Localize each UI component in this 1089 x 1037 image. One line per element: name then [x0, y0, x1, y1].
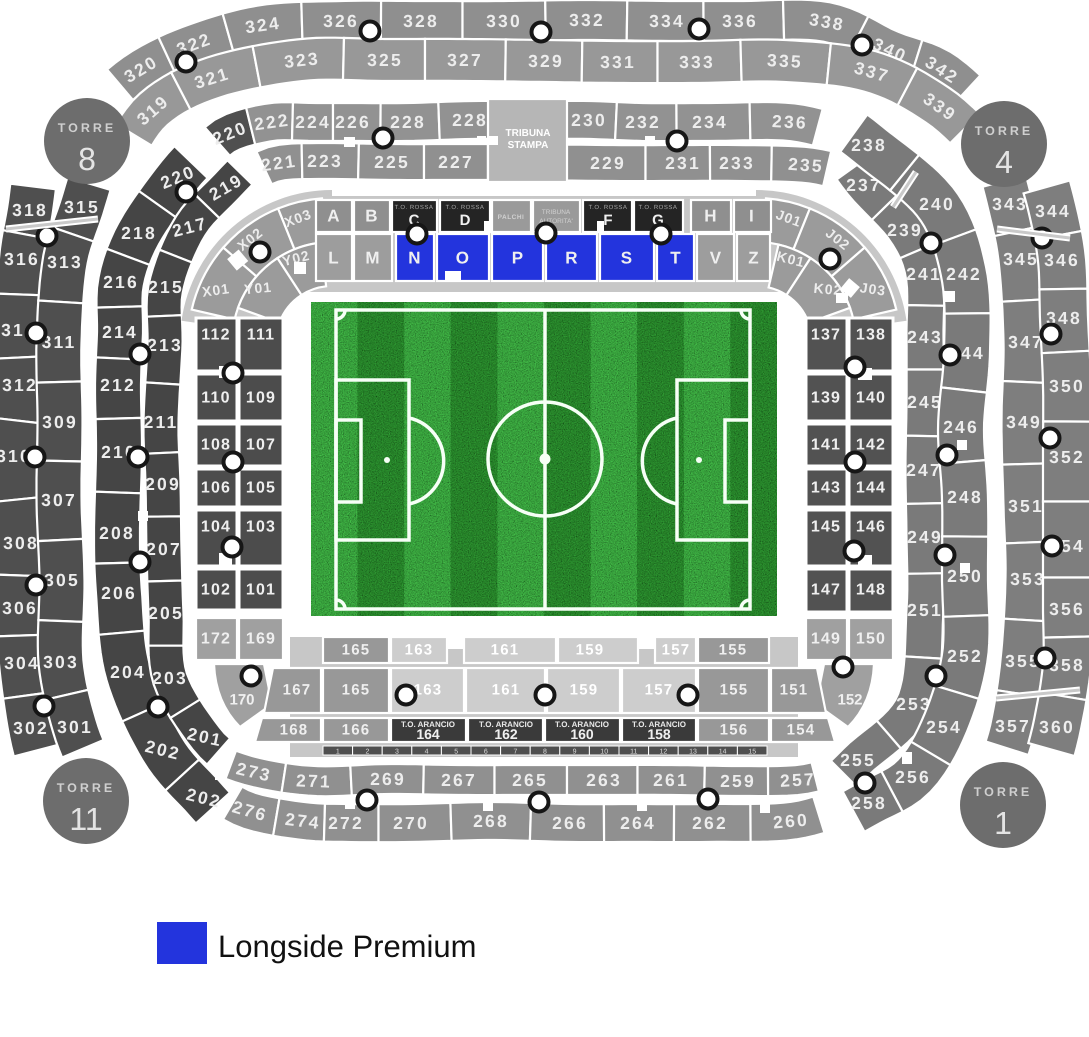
- svg-text:360: 360: [1039, 717, 1075, 737]
- svg-text:336: 336: [722, 11, 758, 31]
- svg-text:165: 165: [342, 642, 371, 659]
- svg-text:224: 224: [295, 112, 331, 132]
- svg-text:206: 206: [101, 583, 137, 603]
- svg-text:163: 163: [414, 682, 443, 699]
- svg-text:F: F: [603, 212, 612, 229]
- svg-text:157: 157: [645, 682, 674, 699]
- svg-text:331: 331: [600, 52, 636, 72]
- svg-text:204: 204: [110, 662, 146, 682]
- svg-text:O: O: [456, 249, 470, 268]
- svg-text:309: 309: [42, 412, 78, 432]
- svg-text:6: 6: [484, 749, 488, 756]
- svg-text:335: 335: [767, 50, 804, 72]
- svg-text:261: 261: [653, 770, 689, 790]
- svg-text:247: 247: [906, 460, 942, 480]
- svg-text:104: 104: [201, 519, 231, 536]
- svg-text:238: 238: [851, 135, 887, 155]
- svg-text:325: 325: [367, 50, 403, 70]
- svg-text:302: 302: [13, 718, 49, 738]
- svg-text:349: 349: [1006, 412, 1042, 432]
- svg-text:232: 232: [625, 112, 661, 132]
- svg-text:TRIBUNA: TRIBUNA: [542, 209, 571, 216]
- svg-text:B: B: [365, 207, 378, 226]
- svg-text:239: 239: [887, 220, 923, 240]
- svg-text:TORRE: TORRE: [58, 121, 117, 135]
- svg-text:323: 323: [283, 48, 321, 72]
- svg-text:148: 148: [856, 582, 886, 599]
- svg-text:138: 138: [856, 327, 886, 344]
- svg-text:T.O. ROSSA: T.O. ROSSA: [639, 204, 678, 211]
- svg-text:343: 343: [992, 194, 1028, 214]
- svg-text:M: M: [365, 249, 380, 268]
- svg-text:159: 159: [576, 642, 605, 659]
- svg-text:101: 101: [246, 582, 276, 599]
- svg-text:172: 172: [201, 631, 231, 648]
- svg-text:301: 301: [57, 717, 93, 737]
- svg-text:228: 228: [390, 112, 426, 132]
- svg-text:137: 137: [811, 327, 841, 344]
- svg-text:316: 316: [4, 249, 40, 269]
- svg-text:315: 315: [64, 197, 100, 217]
- svg-text:147: 147: [811, 582, 841, 599]
- svg-text:326: 326: [323, 11, 359, 31]
- svg-text:332: 332: [569, 10, 605, 30]
- svg-text:161: 161: [492, 682, 521, 699]
- svg-text:139: 139: [811, 390, 841, 407]
- svg-text:H: H: [704, 207, 717, 226]
- svg-text:110: 110: [201, 390, 230, 407]
- svg-text:207: 207: [146, 539, 182, 559]
- svg-text:154: 154: [787, 722, 816, 739]
- svg-text:246: 246: [943, 417, 979, 437]
- svg-text:303: 303: [43, 652, 79, 672]
- svg-text:168: 168: [280, 722, 309, 739]
- svg-text:STAMPA: STAMPA: [508, 140, 549, 151]
- svg-text:Y01: Y01: [243, 279, 272, 297]
- svg-text:231: 231: [665, 153, 701, 173]
- svg-text:209: 209: [145, 474, 181, 494]
- svg-text:149: 149: [811, 631, 841, 648]
- svg-text:353: 353: [1010, 569, 1046, 589]
- svg-text:102: 102: [201, 582, 231, 599]
- svg-text:225: 225: [374, 152, 410, 172]
- svg-text:142: 142: [856, 437, 886, 454]
- svg-text:304: 304: [4, 653, 40, 673]
- svg-text:PALCHI: PALCHI: [498, 214, 525, 221]
- svg-text:254: 254: [926, 717, 962, 737]
- svg-text:268: 268: [473, 811, 509, 831]
- svg-text:151: 151: [780, 682, 809, 699]
- svg-text:T: T: [670, 249, 682, 268]
- svg-text:313: 313: [47, 252, 83, 272]
- svg-text:L: L: [328, 249, 340, 268]
- svg-text:R: R: [565, 249, 578, 268]
- svg-text:112: 112: [201, 327, 230, 344]
- svg-text:257: 257: [780, 769, 817, 791]
- svg-text:245: 245: [907, 392, 943, 412]
- svg-text:259: 259: [720, 771, 756, 791]
- svg-text:165: 165: [342, 682, 371, 699]
- svg-text:308: 308: [3, 533, 39, 553]
- svg-text:272: 272: [328, 813, 364, 833]
- svg-text:212: 212: [100, 375, 136, 395]
- svg-text:312: 312: [2, 375, 38, 395]
- svg-text:2: 2: [365, 749, 369, 756]
- svg-text:265: 265: [512, 770, 548, 790]
- svg-text:140: 140: [856, 390, 886, 407]
- svg-text:P: P: [512, 249, 525, 268]
- svg-text:228: 228: [452, 110, 488, 130]
- svg-text:241: 241: [906, 264, 942, 284]
- svg-text:208: 208: [99, 523, 135, 543]
- svg-text:V: V: [710, 249, 723, 268]
- svg-text:TORRE: TORRE: [975, 124, 1034, 138]
- svg-text:164: 164: [416, 726, 440, 742]
- svg-text:249: 249: [907, 527, 943, 547]
- svg-text:350: 350: [1049, 376, 1085, 396]
- svg-text:166: 166: [342, 722, 371, 739]
- svg-text:328: 328: [403, 11, 439, 31]
- svg-text:163: 163: [405, 642, 434, 659]
- svg-text:203: 203: [152, 668, 188, 688]
- svg-text:258: 258: [851, 793, 887, 813]
- svg-text:105: 105: [246, 480, 276, 497]
- svg-text:262: 262: [692, 813, 728, 833]
- svg-text:152: 152: [837, 692, 862, 709]
- svg-text:T.O. ROSSA: T.O. ROSSA: [395, 204, 434, 211]
- svg-text:4: 4: [425, 749, 429, 756]
- svg-text:255: 255: [840, 750, 876, 770]
- svg-text:226: 226: [335, 112, 371, 132]
- svg-text:329: 329: [528, 51, 564, 71]
- svg-text:7: 7: [513, 749, 517, 756]
- svg-text:236: 236: [772, 111, 809, 133]
- svg-text:158: 158: [647, 726, 671, 742]
- svg-text:12: 12: [660, 749, 668, 756]
- svg-text:251: 251: [907, 600, 943, 620]
- svg-text:157: 157: [662, 642, 691, 659]
- svg-text:229: 229: [590, 153, 626, 173]
- svg-text:243: 243: [907, 327, 943, 347]
- svg-text:TORRE: TORRE: [57, 781, 116, 795]
- svg-text:169: 169: [246, 631, 276, 648]
- svg-text:160: 160: [570, 726, 594, 742]
- svg-text:271: 271: [296, 770, 332, 791]
- svg-text:9: 9: [573, 749, 577, 756]
- svg-text:150: 150: [856, 631, 886, 648]
- svg-text:5: 5: [454, 749, 458, 756]
- svg-text:330: 330: [486, 11, 522, 31]
- svg-text:215: 215: [148, 277, 184, 297]
- svg-text:347: 347: [1008, 332, 1044, 352]
- svg-text:T.O. ROSSA: T.O. ROSSA: [446, 204, 485, 211]
- svg-text:1: 1: [336, 749, 340, 756]
- svg-text:15: 15: [748, 749, 756, 756]
- svg-text:108: 108: [201, 437, 231, 454]
- svg-text:266: 266: [552, 813, 588, 833]
- svg-text:305: 305: [44, 570, 80, 590]
- svg-text:159: 159: [570, 682, 599, 699]
- svg-text:333: 333: [679, 52, 715, 72]
- svg-text:156: 156: [720, 722, 749, 739]
- svg-text:351: 351: [1008, 496, 1044, 516]
- svg-text:8: 8: [78, 141, 96, 177]
- svg-text:234: 234: [692, 112, 728, 132]
- svg-text:111: 111: [247, 327, 276, 344]
- svg-text:263: 263: [586, 770, 622, 790]
- svg-text:218: 218: [121, 223, 157, 243]
- svg-text:S: S: [621, 249, 634, 268]
- svg-text:D: D: [460, 212, 471, 229]
- svg-text:306: 306: [2, 598, 38, 618]
- svg-text:213: 213: [147, 335, 183, 355]
- svg-text:352: 352: [1049, 447, 1085, 467]
- svg-text:214: 214: [102, 322, 138, 342]
- svg-text:14: 14: [719, 749, 727, 756]
- svg-text:240: 240: [919, 194, 955, 214]
- svg-text:11: 11: [630, 749, 637, 756]
- svg-text:8: 8: [543, 749, 547, 756]
- svg-text:107: 107: [246, 437, 276, 454]
- svg-text:260: 260: [772, 809, 809, 832]
- svg-text:256: 256: [895, 767, 931, 787]
- svg-text:235: 235: [787, 154, 824, 176]
- svg-text:356: 356: [1049, 599, 1085, 619]
- svg-text:211: 211: [144, 412, 179, 432]
- svg-text:223: 223: [307, 151, 343, 171]
- svg-text:144: 144: [856, 480, 886, 497]
- svg-text:318: 318: [12, 200, 48, 220]
- svg-text:3: 3: [395, 749, 399, 756]
- svg-text:230: 230: [571, 110, 607, 130]
- svg-text:327: 327: [447, 50, 483, 70]
- svg-text:106: 106: [201, 480, 231, 497]
- svg-text:155: 155: [720, 682, 749, 699]
- svg-text:357: 357: [995, 716, 1031, 736]
- svg-text:248: 248: [947, 487, 983, 507]
- svg-text:145: 145: [811, 519, 841, 536]
- svg-text:205: 205: [148, 603, 184, 623]
- svg-text:10: 10: [600, 749, 608, 756]
- svg-text:345: 345: [1003, 249, 1039, 269]
- svg-text:162: 162: [494, 726, 518, 742]
- svg-text:TRIBUNA: TRIBUNA: [506, 128, 551, 139]
- svg-text:264: 264: [620, 813, 656, 833]
- svg-text:143: 143: [811, 480, 841, 497]
- svg-text:TORRE: TORRE: [974, 785, 1033, 799]
- svg-text:161: 161: [491, 642, 520, 659]
- svg-text:13: 13: [689, 749, 697, 756]
- svg-text:307: 307: [41, 490, 77, 510]
- svg-text:T.O. ROSSA: T.O. ROSSA: [589, 204, 628, 211]
- svg-text:252: 252: [947, 646, 983, 666]
- svg-text:103: 103: [246, 519, 276, 536]
- svg-text:11: 11: [69, 801, 102, 837]
- svg-text:109: 109: [246, 390, 276, 407]
- svg-text:155: 155: [719, 642, 748, 659]
- svg-text:1: 1: [994, 805, 1012, 841]
- svg-text:A: A: [327, 207, 340, 226]
- svg-text:227: 227: [438, 152, 474, 172]
- svg-text:167: 167: [283, 682, 312, 699]
- svg-text:269: 269: [370, 769, 406, 789]
- svg-text:344: 344: [1035, 201, 1071, 221]
- svg-text:146: 146: [856, 519, 886, 536]
- svg-text:Z: Z: [748, 249, 760, 268]
- svg-text:270: 270: [393, 813, 429, 833]
- svg-text:233: 233: [719, 153, 755, 173]
- svg-text:346: 346: [1044, 250, 1080, 270]
- svg-text:216: 216: [103, 272, 139, 292]
- svg-text:242: 242: [946, 264, 982, 284]
- svg-text:4: 4: [995, 144, 1013, 180]
- svg-text:N: N: [408, 249, 421, 268]
- svg-text:267: 267: [441, 770, 477, 790]
- svg-text:I: I: [749, 207, 755, 226]
- svg-text:Longside Premium: Longside Premium: [218, 929, 476, 964]
- svg-text:334: 334: [649, 11, 685, 31]
- svg-text:141: 141: [811, 437, 841, 454]
- svg-text:170: 170: [229, 692, 254, 709]
